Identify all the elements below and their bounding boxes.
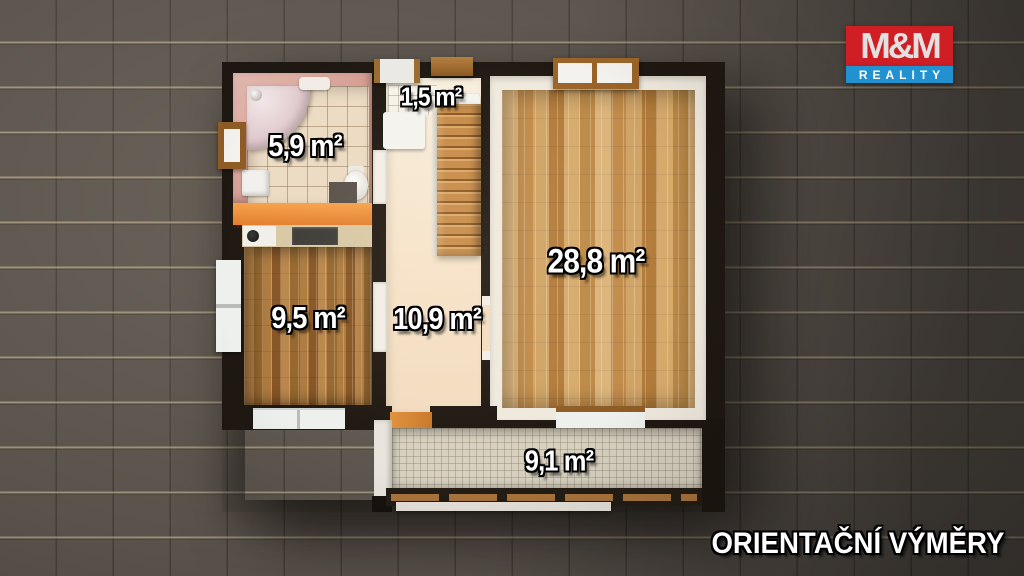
area-label-balcony: 9,1 m² (525, 446, 593, 479)
staircase (437, 104, 481, 256)
window-mullion (216, 304, 241, 308)
disclaimer-text: ORIENTAČNÍ VÝMĚRY (711, 527, 1004, 561)
area-label-bathroom: 5,9 m² (268, 128, 342, 164)
living-room-top-window (553, 58, 639, 89)
kitchen-window-bottom (253, 408, 345, 429)
bath-mat (329, 182, 357, 203)
window-mullion (297, 410, 300, 429)
area-label-living-room: 28,8 m² (548, 243, 645, 282)
railing-wood-rail (391, 494, 697, 501)
mm-reality-logo: M&M REALITY (846, 26, 953, 83)
bathroom-door (373, 150, 387, 204)
window-pane (224, 129, 240, 162)
balcony-right-wall (702, 418, 725, 512)
wall-segment (430, 406, 497, 430)
area-label-wc: 1,5 m² (401, 82, 462, 113)
kitchen-appliance (243, 226, 276, 246)
window-pane (558, 63, 592, 83)
appliance-door (247, 230, 259, 242)
kitchen-cooktop (292, 227, 338, 245)
area-label-hallway: 10,9 m² (393, 301, 481, 337)
balcony-outer-ledge (396, 502, 611, 511)
floor-plan-render: 5,9 m² 1,5 m² 28,8 m² 9,5 m² 10,9 m² 9,1… (0, 0, 1024, 576)
stair-top-window (431, 57, 473, 76)
wc-vanity (383, 112, 425, 149)
wc-top-window (374, 59, 420, 83)
logo-blue-band: REALITY (846, 66, 953, 83)
logo-text-reality: REALITY (859, 69, 945, 81)
kitchen-window-left (216, 260, 241, 352)
shower-head (250, 89, 262, 101)
bathroom-window (218, 122, 246, 169)
bathroom-sink (299, 77, 330, 90)
washing-machine (242, 170, 269, 196)
logo-text-mm: M&M (860, 28, 939, 64)
logo-red-box: M&M (846, 26, 953, 66)
window-pane (597, 63, 632, 83)
kitchen-counter (233, 203, 372, 225)
area-label-kitchen: 9,5 m² (271, 300, 345, 336)
kitchen-door (373, 282, 387, 352)
